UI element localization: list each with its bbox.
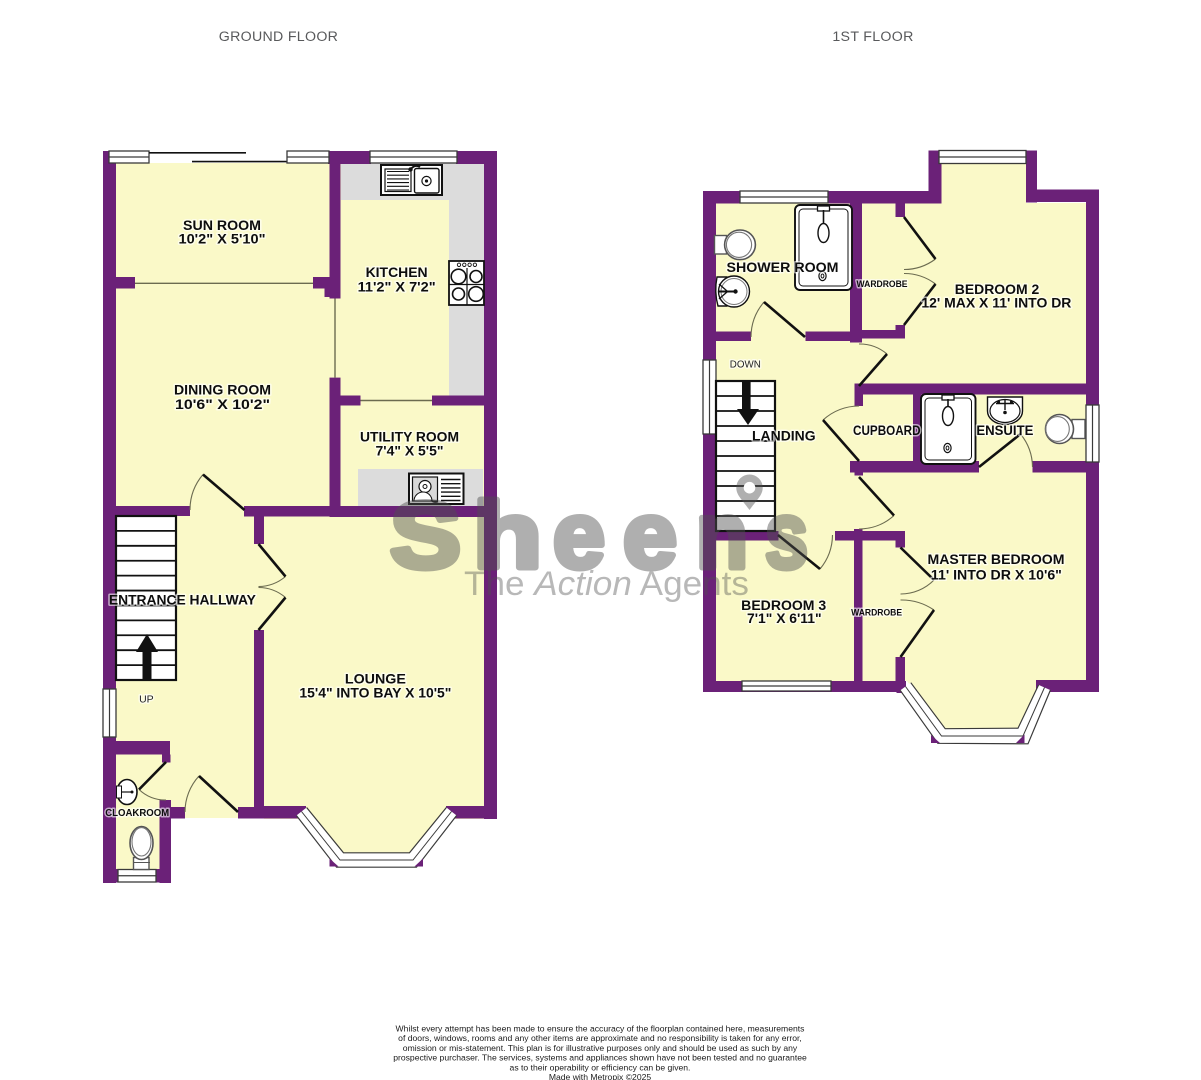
svg-text:DOWN: DOWN <box>730 358 761 370</box>
svg-text:DINING ROOM: DINING ROOM <box>174 383 271 398</box>
svg-text:UTILITY ROOM: UTILITY ROOM <box>360 429 459 444</box>
svg-text:omission or mis-statement. Thi: omission or mis-statement. This plan is … <box>403 1043 798 1053</box>
svg-text:CLOAKROOM: CLOAKROOM <box>105 808 169 819</box>
svg-text:Whilst every attempt has been: Whilst every attempt has been made to en… <box>396 1024 805 1034</box>
svg-text:GROUND FLOOR: GROUND FLOOR <box>219 29 338 45</box>
svg-text:MASTER BEDROOM: MASTER BEDROOM <box>928 552 1065 567</box>
svg-text:SHOWER ROOM: SHOWER ROOM <box>727 260 839 275</box>
svg-text:of doors, windows, rooms and a: of doors, windows, rooms and any other i… <box>398 1033 802 1043</box>
svg-text:11'2" X 7'2": 11'2" X 7'2" <box>358 280 436 295</box>
svg-text:11' INTO DR X 10'6": 11' INTO DR X 10'6" <box>931 567 1062 582</box>
svg-text:12' MAX X 11' INTO DR: 12' MAX X 11' INTO DR <box>921 295 1071 310</box>
svg-text:LOUNGE: LOUNGE <box>345 672 406 687</box>
svg-text:as to their operability or eff: as to their operability or efficiency ca… <box>510 1062 691 1072</box>
svg-text:10'6" X 10'2": 10'6" X 10'2" <box>175 397 270 412</box>
svg-text:Made with Metropix ©2025: Made with Metropix ©2025 <box>549 1072 652 1080</box>
svg-text:LANDING: LANDING <box>752 428 816 443</box>
svg-text:CUPBOARD: CUPBOARD <box>853 423 921 438</box>
svg-text:WARDROBE: WARDROBE <box>857 278 908 289</box>
svg-text:s: s <box>765 483 808 588</box>
svg-text:WARDROBE: WARDROBE <box>851 607 902 618</box>
svg-text:ENTRANCE HALLWAY: ENTRANCE HALLWAY <box>109 593 256 608</box>
svg-text:7'1" X 6'11": 7'1" X 6'11" <box>747 611 822 626</box>
svg-text:prospective purchaser. The ser: prospective purchaser. The services, sys… <box>393 1053 807 1063</box>
svg-text:ENSUITE: ENSUITE <box>976 423 1033 438</box>
svg-text:15'4" INTO BAY X 10'5": 15'4" INTO BAY X 10'5" <box>299 686 451 701</box>
svg-text:10'2" X 5'10": 10'2" X 5'10" <box>179 232 266 247</box>
svg-text:The Action Agents: The Action Agents <box>464 565 749 603</box>
svg-text:UP: UP <box>139 693 154 705</box>
svg-text:1ST FLOOR: 1ST FLOOR <box>832 29 913 45</box>
svg-text:7'4" X 5'5": 7'4" X 5'5" <box>376 443 444 458</box>
svg-text:KITCHEN: KITCHEN <box>366 265 428 280</box>
svg-text:S: S <box>390 483 461 588</box>
